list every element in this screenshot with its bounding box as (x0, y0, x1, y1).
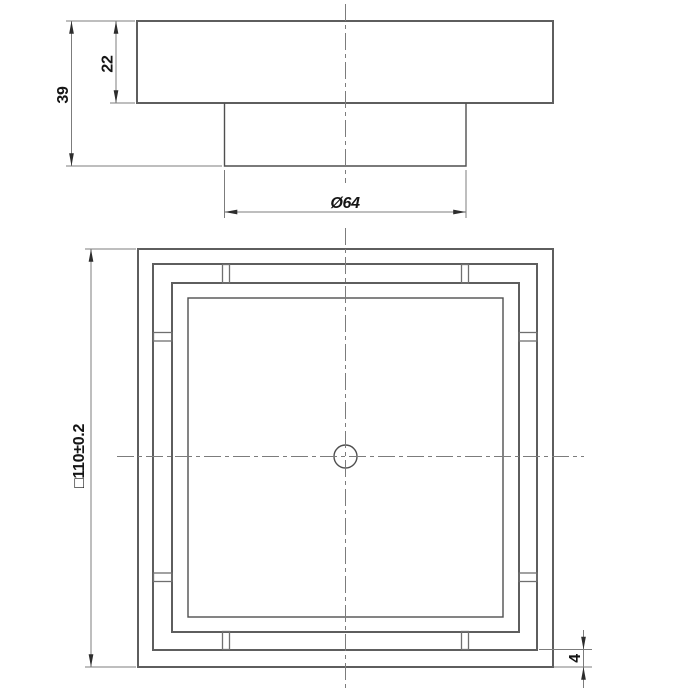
tab-left-lower (154, 573, 173, 582)
dimension-flange-height: 22 (100, 21, 136, 103)
side-view: 39 22 Ø64 (55, 4, 553, 218)
dimension-label-outer-square: □110±0.2 (71, 424, 88, 489)
tab-bottom-left (223, 632, 230, 650)
technical-drawing: 39 22 Ø64 (0, 0, 700, 700)
dimension-frame-inset: 4 (539, 630, 592, 688)
dimension-label-flange-height: 22 (100, 55, 117, 73)
dimension-label-frame-inset: 4 (567, 654, 584, 663)
dimension-outlet-diameter: Ø64 (225, 170, 467, 218)
tab-bottom-right (462, 632, 469, 650)
drawing-canvas: 39 22 Ø64 (0, 0, 700, 700)
tab-left-upper (154, 333, 173, 342)
plan-view: □110±0.2 4 (71, 228, 592, 691)
dimension-label-outlet-diameter: Ø64 (330, 195, 360, 212)
tab-right-lower (519, 573, 537, 582)
dimension-label-total-height: 39 (55, 86, 72, 104)
tab-right-upper (519, 333, 537, 342)
dimension-total-height: 39 (55, 21, 222, 166)
tab-top-right (462, 265, 469, 284)
outer-frame-square (138, 249, 553, 667)
dimension-outer-square: □110±0.2 (71, 249, 136, 667)
tab-top-left (223, 265, 230, 284)
